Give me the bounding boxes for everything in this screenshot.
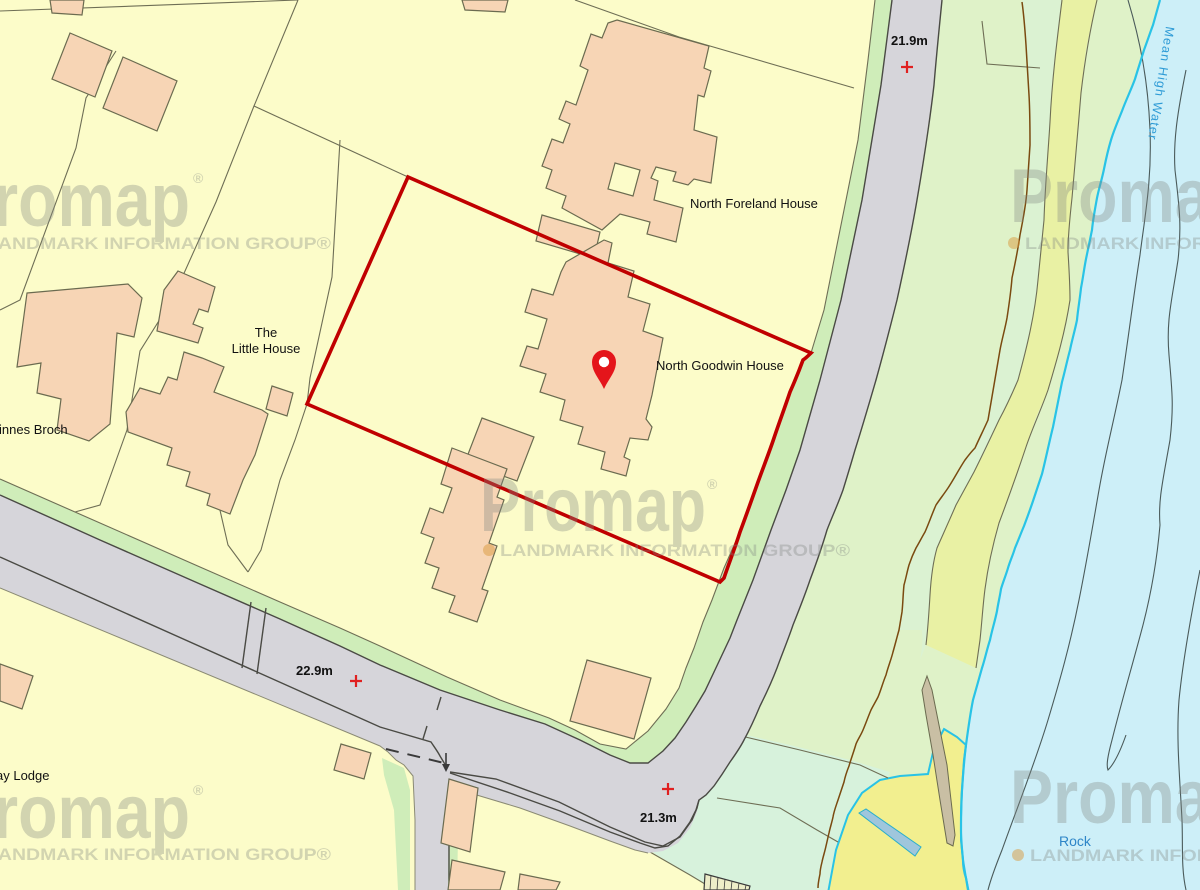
svg-text:LANDMARK INFORMATION GROUP®: LANDMARK INFORMATION GROUP® — [0, 845, 332, 864]
svg-text:Promap: Promap — [0, 770, 190, 855]
svg-text:Little House: Little House — [232, 341, 301, 356]
svg-text:Promap: Promap — [1010, 755, 1200, 840]
svg-text:LANDMARK INFORMATION GROUP®: LANDMARK INFORMATION GROUP® — [500, 541, 851, 560]
svg-text:21.9m: 21.9m — [891, 33, 928, 48]
svg-text:Promap: Promap — [0, 158, 190, 243]
svg-text:Promap: Promap — [480, 463, 706, 548]
svg-text:21.3m: 21.3m — [640, 810, 677, 825]
svg-text:The: The — [255, 325, 277, 340]
svg-text:®: ® — [707, 476, 718, 492]
svg-text:22.9m: 22.9m — [296, 663, 333, 678]
svg-text:North Goodwin House: North Goodwin House — [656, 358, 784, 373]
svg-text:LANDMARK INFORMATION GROUP®: LANDMARK INFORMATION GROUP® — [0, 234, 332, 253]
svg-text:®: ® — [193, 782, 204, 798]
svg-text:innes Broch: innes Broch — [0, 422, 68, 437]
svg-text:LANDMARK INFORMATION GROUP®: LANDMARK INFORMATION GROUP® — [1030, 846, 1200, 865]
svg-text:LANDMARK INFORMATION GROUP®: LANDMARK INFORMATION GROUP® — [1025, 234, 1200, 253]
svg-text:®: ® — [193, 170, 204, 186]
svg-text:Promap: Promap — [1010, 154, 1200, 239]
svg-text:North Foreland House: North Foreland House — [690, 196, 818, 211]
